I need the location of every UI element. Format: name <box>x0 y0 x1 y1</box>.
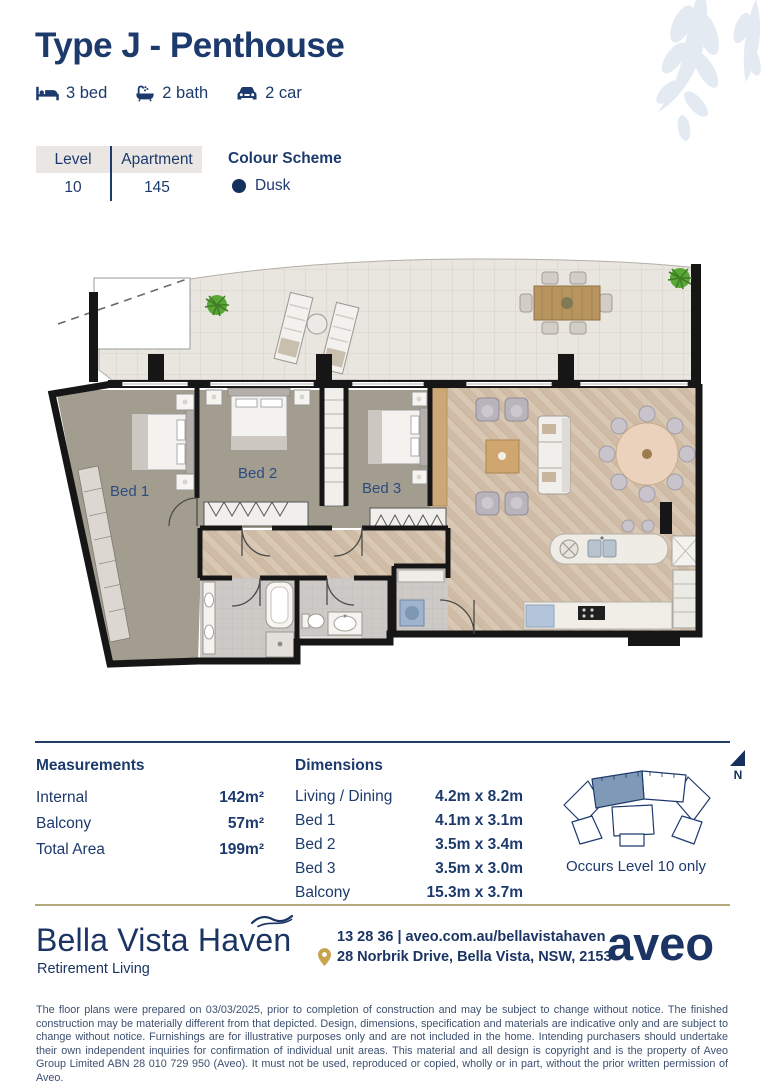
bathroom <box>300 612 362 642</box>
feature-bed: 3 bed <box>36 84 107 103</box>
contact-block: 13 28 36 | aveo.com.au/bellavistahaven 2… <box>318 927 612 967</box>
keyplan-highlight-unit <box>592 771 644 808</box>
section-top-rule <box>35 741 730 743</box>
toilet <box>308 614 324 628</box>
measurement-row: Internal 142m² <box>36 785 264 811</box>
feature-bath-label: 2 bath <box>162 84 208 103</box>
feature-car-label: 2 car <box>265 84 302 103</box>
dimension-row: Bed 3 3.5m x 3.0m <box>295 857 523 881</box>
wave-icon <box>250 912 294 928</box>
measurement-row: Total Area 199m² <box>36 837 264 863</box>
bath-icon <box>135 85 155 102</box>
keyplan <box>556 766 716 858</box>
measurement-row: Balcony 57m² <box>36 811 264 837</box>
measurements-heading: Measurements <box>36 757 264 775</box>
footer-rule <box>35 904 730 906</box>
dining-table <box>599 406 695 502</box>
aveo-logo: aveo <box>607 916 714 971</box>
north-label: N <box>734 768 743 782</box>
colour-scheme-header: Colour Scheme <box>228 150 342 168</box>
bed3-label: Bed 3 <box>362 480 401 497</box>
dimension-row: Living / Dining 4.2m x 8.2m <box>295 785 523 809</box>
linen-cupboard <box>324 386 346 506</box>
pantry <box>673 570 699 628</box>
car-icon <box>236 86 258 101</box>
dimension-row: Bed 1 4.1m x 3.1m <box>295 809 523 833</box>
leaf-watermark <box>588 0 764 158</box>
sofa <box>538 416 570 494</box>
feature-row: 3 bed 2 bath 2 car <box>36 84 302 103</box>
side-table <box>307 314 327 334</box>
feature-bath: 2 bath <box>135 84 208 103</box>
apartment-value: 145 <box>112 179 202 197</box>
window-wall <box>108 380 701 388</box>
bed-icon <box>36 86 59 101</box>
contact-address: 28 Norbrik Drive, Bella Vista, NSW, 2153 <box>337 947 612 967</box>
basin <box>334 616 356 631</box>
dimension-row: Bed 2 3.5m x 3.4m <box>295 833 523 857</box>
north-arrow-icon: N <box>726 746 750 782</box>
disclaimer-text: The floor plans were prepared on 03/03/2… <box>36 1004 728 1086</box>
balcony-void <box>94 278 190 349</box>
level-header: Level <box>36 146 110 173</box>
dimensions-heading: Dimensions <box>295 757 523 775</box>
apartment-header: Apartment <box>112 146 202 173</box>
dimensions-table: Dimensions Living / Dining 4.2m x 8.2m B… <box>295 757 523 905</box>
page-title: Type J - Penthouse <box>35 26 344 66</box>
feature-car: 2 car <box>236 84 302 103</box>
unit-info-table: Level Apartment Colour Scheme 10 145 Dus… <box>36 146 456 202</box>
level-value: 10 <box>36 179 110 197</box>
balcony <box>58 259 701 384</box>
bed2-label: Bed 2 <box>238 465 277 482</box>
measurements-table: Measurements Internal 142m² Balcony 57m²… <box>36 757 264 863</box>
feature-bed-label: 3 bed <box>66 84 107 103</box>
location-pin-icon <box>318 948 331 966</box>
brand-tagline: Retirement Living <box>37 961 150 977</box>
floorplan: Bed 1 Bed 2 Bed 3 <box>32 248 732 738</box>
dishwasher <box>526 605 554 627</box>
contact-phone-web[interactable]: 13 28 36 | aveo.com.au/bellavistahaven <box>318 927 612 947</box>
bed1-label: Bed 1 <box>110 483 149 500</box>
colour-scheme-value: Dusk <box>255 177 290 195</box>
keyplan-caption: Occurs Level 10 only <box>545 858 727 875</box>
colour-swatch-dusk <box>232 179 246 193</box>
dimension-row: Balcony 15.3m x 3.7m <box>295 881 523 905</box>
